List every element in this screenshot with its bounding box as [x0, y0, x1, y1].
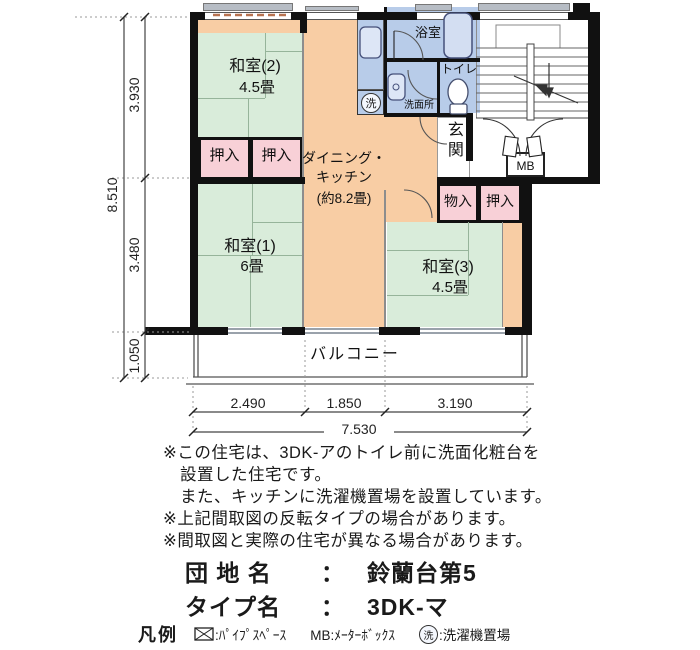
- partition-line: [384, 190, 386, 327]
- window: [417, 12, 450, 20]
- room-label-washitsu2: 和室(2): [205, 58, 305, 76]
- window: [480, 12, 568, 20]
- meter-box-label: MB: [506, 160, 545, 173]
- dim-total-width: 7.530: [324, 421, 394, 437]
- wall-washitsu2-dk: [300, 12, 307, 33]
- dim-height-seg-3: 1.050: [126, 326, 142, 386]
- balcony-door-sash: [420, 328, 505, 330]
- window-sash: [478, 3, 570, 11]
- closet-label-c: 押入: [478, 194, 522, 210]
- dim-width-seg-3: 3.190: [420, 395, 490, 411]
- storage-label: 物入: [437, 194, 479, 210]
- room-label-washroom: 洗面所: [394, 100, 444, 111]
- laundry-place-char: 洗: [366, 95, 377, 111]
- room-label-dk-2: キッチン: [297, 170, 391, 186]
- room-label-washitsu3: 和室(3): [398, 259, 498, 277]
- dim-height-seg-2: 3.480: [126, 225, 142, 285]
- tatami-mat-line: [387, 250, 468, 251]
- legend-pipe-space-label: :ﾊﾟｲﾌﾟｽﾍﾟｰｽ: [215, 624, 286, 644]
- wall-stairwell-bottom: [437, 177, 600, 184]
- dim-width-seg-1: 2.490: [213, 395, 283, 411]
- balcony-door-sash: [305, 328, 379, 330]
- washitsu3-side-strip: [503, 222, 522, 327]
- kitchen-counter-strip: [357, 16, 384, 90]
- legend-laundry: 洗 :洗濯機置場: [419, 624, 510, 644]
- estate-name-value: 鈴蘭台第5: [367, 554, 477, 588]
- legend-title: 凡例: [138, 621, 178, 647]
- balcony-door-sash: [228, 328, 282, 330]
- legend-row: 凡例 :ﾊﾟｲﾌﾟｽﾍﾟｰｽ MB:ﾒｰﾀｰﾎﾞｯｸｽ 洗 :洗濯機置場: [138, 621, 534, 647]
- staircase: [476, 25, 588, 120]
- room-size-washitsu3: 4.5畳: [400, 280, 500, 297]
- type-colon: ：: [321, 588, 345, 622]
- balcony-door-sash: [420, 332, 505, 334]
- floorplan-page: 和室(2) 4.5畳 和室(1) 6畳 和室(3) 4.5畳 ダイニング・ キッ…: [0, 0, 700, 650]
- hall-area: [385, 117, 437, 222]
- balcony-door-sash: [305, 332, 379, 334]
- note-line: ※間取図と実際の住宅が異なる場合があります。: [163, 530, 552, 552]
- window-sash: [415, 4, 452, 11]
- notes-block: ※この住宅は、3DK-アのトイレ前に洗面化粧台を 設置した住宅です。 また、キッ…: [163, 442, 552, 552]
- legend-meter-box: MB:ﾒｰﾀｰﾎﾞｯｸｽ: [310, 624, 395, 644]
- window-sash: [203, 3, 293, 11]
- window-sash: [305, 6, 359, 11]
- stair-direction-arrow: [514, 63, 578, 103]
- wall-genkan-right: [466, 113, 473, 161]
- tatami-mat-line: [198, 98, 265, 99]
- laundry-legend-icon: 洗: [419, 625, 438, 644]
- legend-laundry-label: :洗濯機置場: [439, 624, 510, 644]
- dim-height-seg-1: 3.930: [126, 65, 142, 125]
- type-name-label: タイプ名: [185, 588, 313, 622]
- room-size-washitsu1: 6畳: [202, 259, 302, 276]
- estate-colon: ：: [321, 554, 345, 588]
- estate-name-row: 団 地 名 ： 鈴蘭台第5: [185, 554, 477, 588]
- laundry-legend-char: 洗: [424, 627, 434, 642]
- tatami-mat-line: [265, 51, 303, 52]
- room-label-genkan: 玄関: [444, 121, 462, 161]
- legend-meter-box-label: MB:ﾒｰﾀｰﾎﾞｯｸｽ: [310, 624, 395, 644]
- wall-washroom-bottom: [384, 113, 473, 117]
- wall-stairwell-right: [588, 12, 600, 184]
- room-label-dk-1: ダイニング・: [297, 151, 391, 167]
- room-label-toilet: トイレ: [434, 63, 484, 76]
- tatami-mat-line: [248, 98, 249, 137]
- note-line: 設置した住宅です。: [163, 464, 552, 486]
- balcony-door-sash: [228, 332, 282, 334]
- legend-pipe-space: :ﾊﾟｲﾌﾟｽﾍﾟｰｽ: [194, 624, 286, 644]
- room-label-bath: 浴室: [403, 26, 453, 41]
- type-name-value: 3DK-マ: [367, 588, 449, 622]
- room-size-washitsu2: 4.5畳: [207, 80, 307, 97]
- wall-left: [190, 12, 198, 335]
- window: [205, 12, 291, 20]
- estate-name-label: 団 地 名: [185, 554, 313, 588]
- dim-total-height: 8.510: [104, 165, 120, 225]
- tatami-mat-line: [252, 222, 303, 223]
- type-name-row: タイプ名 ： 3DK-マ: [185, 588, 449, 622]
- note-line: ※この住宅は、3DK-アのトイレ前に洗面化粧台を: [163, 442, 552, 464]
- closet-label-a: 押入: [198, 148, 251, 165]
- wall-closet-row: [190, 177, 305, 184]
- window: [307, 12, 357, 20]
- dim-width-seg-2: 1.850: [309, 395, 379, 411]
- partition-line: [502, 222, 503, 327]
- note-line: また、キッチンに洗濯機置場を設置しています。: [163, 486, 552, 508]
- note-line: ※上記間取図の反転タイプの場合があります。: [163, 508, 552, 530]
- wall-right: [522, 177, 532, 335]
- wall-wet-left: [384, 7, 387, 117]
- balcony-label: バルコニー: [285, 346, 425, 364]
- pipe-space-icon: [194, 627, 214, 641]
- laundry-place-icon: 洗: [361, 93, 381, 113]
- pipe-space-block: [573, 3, 590, 13]
- closet-label-b: 押入: [250, 148, 303, 165]
- room-label-washitsu1: 和室(1): [200, 238, 300, 256]
- room-size-dk: (約8.2畳): [297, 191, 391, 206]
